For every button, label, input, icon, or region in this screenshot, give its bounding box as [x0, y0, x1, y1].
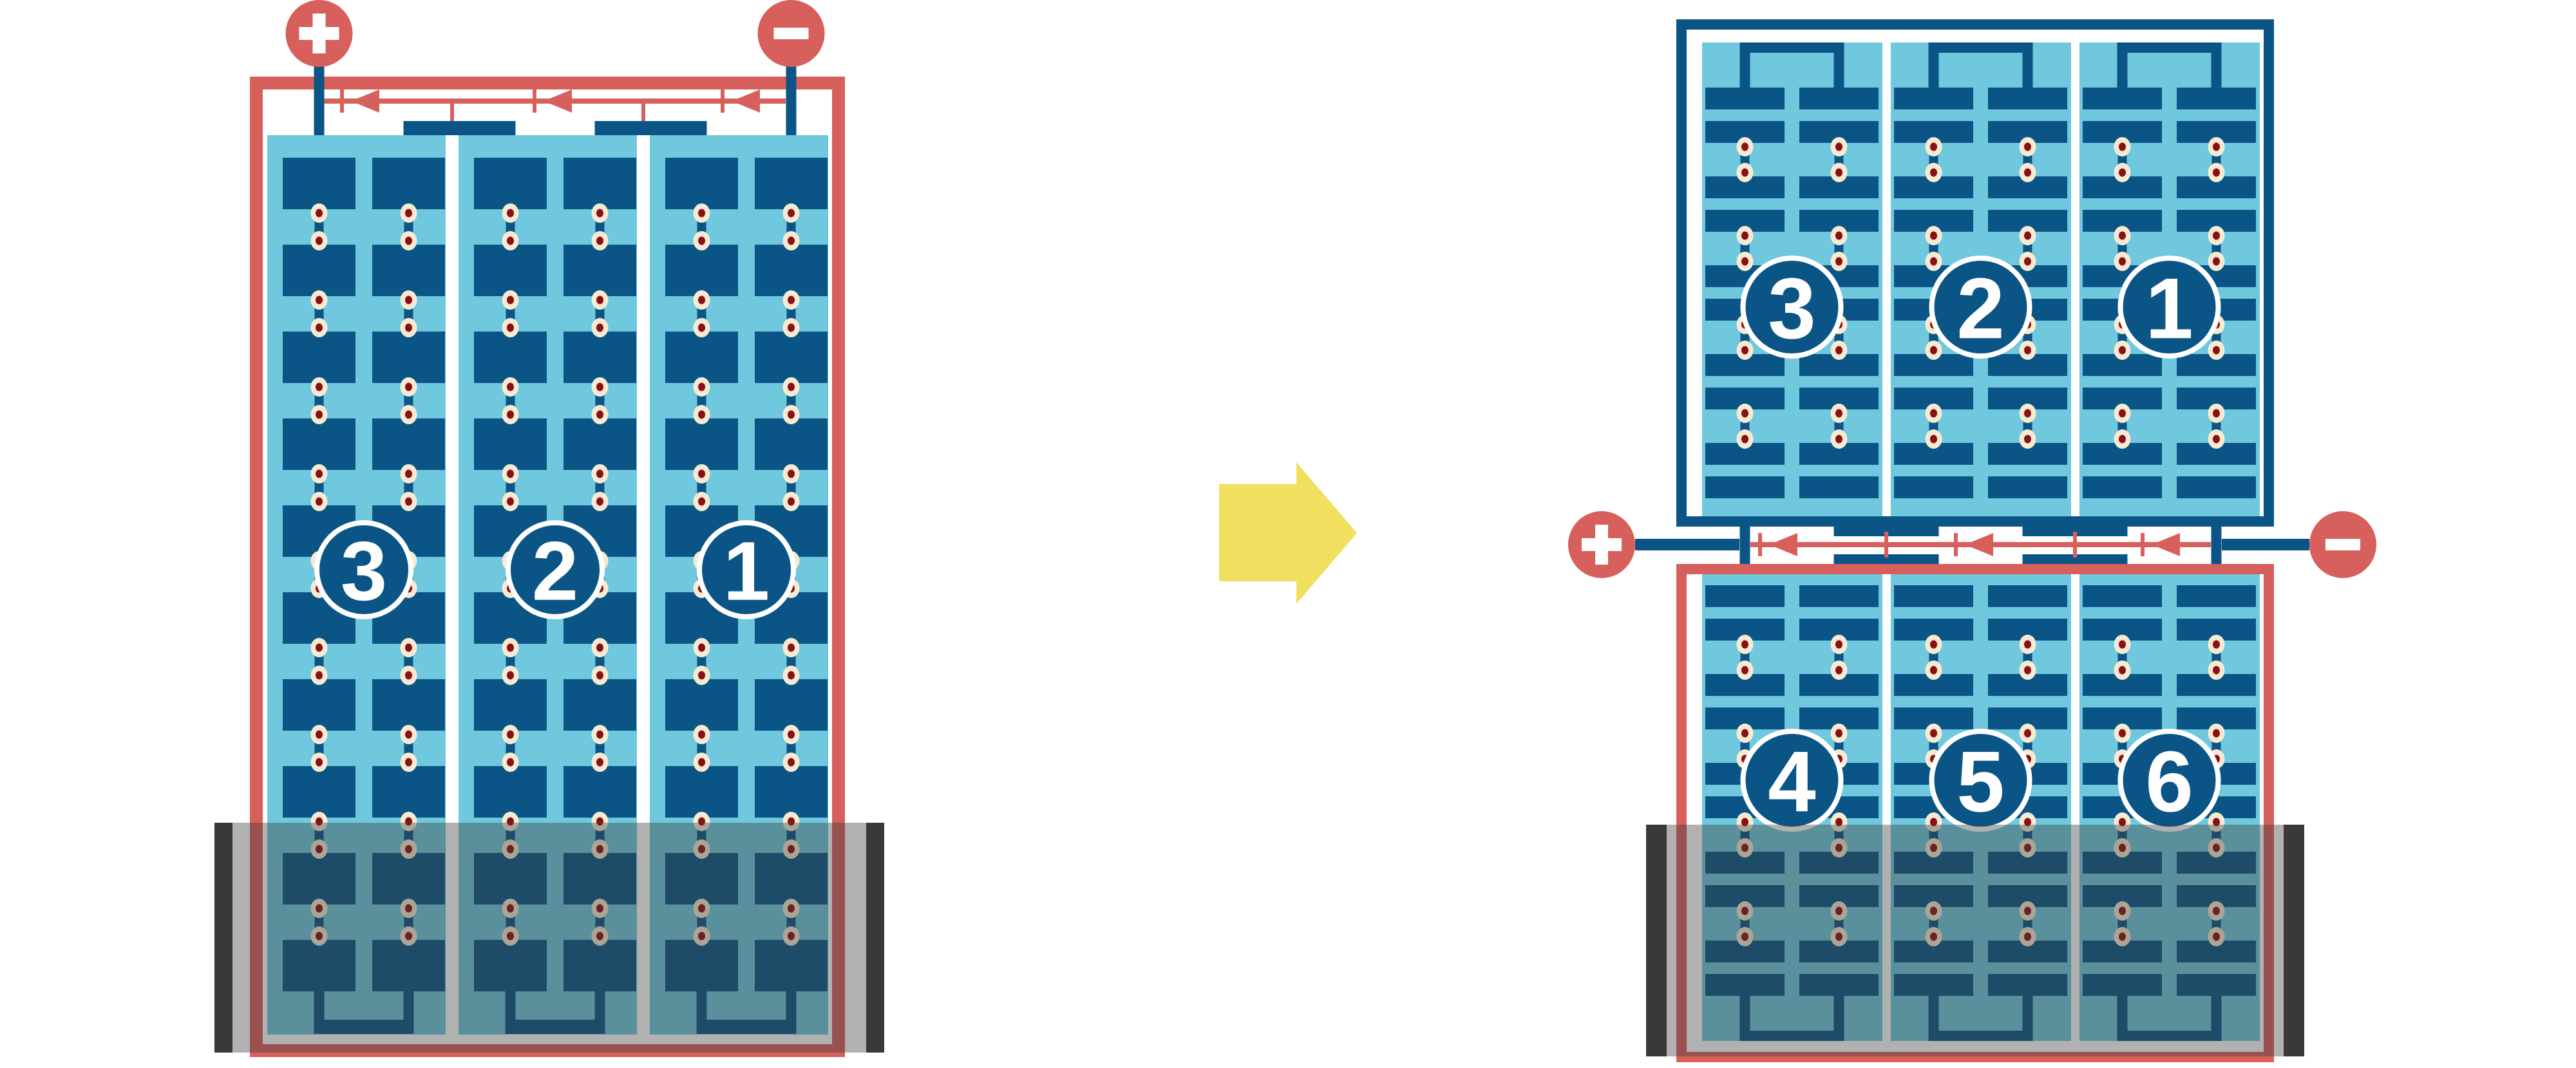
separator-bead-dot: [2024, 666, 2031, 675]
electrode-plate: [1705, 88, 1785, 109]
separator-bead-dot: [2024, 435, 2031, 444]
plus-glyph: [313, 14, 326, 53]
separator-bead-dot: [316, 383, 323, 391]
minus-glyph: [2325, 539, 2360, 550]
current-flow-line: [324, 89, 786, 124]
separator-bead-dot: [1741, 346, 1748, 355]
separator-bead-dot: [1930, 435, 1937, 444]
separator-bead-dot: [788, 411, 795, 419]
cell-number-label: 1: [723, 524, 770, 618]
separator-bead-dot: [1741, 666, 1748, 675]
electrode-plate: [665, 332, 738, 383]
container-glass-overlay: [1646, 825, 2304, 1056]
electrode-plate: [755, 766, 828, 818]
current-tick: [340, 89, 344, 113]
separator-bead-dot: [788, 383, 795, 391]
separator-bead-dot: [316, 731, 323, 739]
negative-terminal-icon: [758, 0, 825, 67]
current-tick: [533, 89, 536, 113]
separator-bead-dot: [507, 324, 514, 332]
separator-bead-dot: [2119, 258, 2126, 266]
separator-bead-dot: [788, 324, 795, 332]
current-arrowhead-left-icon: [1965, 533, 1993, 556]
separator-bead-dot: [596, 324, 603, 332]
separator-bead-dot: [507, 498, 514, 506]
separator-bead-dot: [507, 470, 514, 478]
strap-leg: [1740, 42, 1750, 88]
strap-bar: [2117, 42, 2222, 53]
separator-bead-dot: [1741, 435, 1748, 444]
separator-bead-dot: [507, 758, 514, 767]
separator-bead-dot: [507, 411, 514, 419]
electrode-plate: [283, 332, 355, 383]
separator-bead-dot: [507, 644, 514, 652]
separator-bead-dot: [698, 383, 705, 391]
transform-arrow-icon: [1219, 462, 1357, 604]
electrode-plate: [283, 679, 355, 731]
separator-bead-dot: [1835, 143, 1842, 151]
separator-bead-dot: [507, 383, 514, 391]
electrode-plate: [563, 332, 636, 383]
separator-bead-dot: [1835, 641, 1842, 649]
separator-bead-dot: [1741, 641, 1748, 649]
separator-bead-dot: [507, 209, 514, 218]
electrode-plate: [1894, 585, 1973, 607]
electrode-plate: [563, 418, 636, 470]
battery-cell: 3: [1702, 42, 1882, 516]
separator-bead-dot: [596, 411, 603, 419]
container-glass-overlay: [214, 823, 884, 1053]
separator-bead-dot: [316, 498, 323, 506]
separator-bead-dot: [2213, 409, 2220, 418]
electrode-plate: [665, 158, 738, 209]
container-wall-left: [1646, 825, 1667, 1056]
current-tick: [1954, 533, 1958, 556]
separator-bead-dot: [1930, 409, 1937, 418]
separator-bead-dot: [2119, 232, 2126, 240]
strap-bar: [1929, 42, 2033, 53]
separator-bead-dot: [1930, 346, 1937, 355]
minus-glyph: [774, 28, 809, 39]
battery-cells-diagram: 321321456: [0, 0, 2576, 1068]
current-branch-line: [450, 101, 454, 124]
separator-bead-dot: [316, 324, 323, 332]
electrode-plate: [665, 418, 738, 470]
separator-bead-dot: [1741, 169, 1748, 177]
separator-bead-dot: [788, 644, 795, 652]
current-flow-line: [1750, 532, 2211, 557]
electrode-plate: [372, 679, 445, 731]
separator-bead-dot: [788, 470, 795, 478]
electrode-plate: [372, 418, 445, 470]
diagram-canvas: 321321456: [0, 0, 2576, 1068]
separator-bead-dot: [596, 758, 603, 767]
negative-lead-bar: [2222, 539, 2309, 550]
electrode-plate: [563, 245, 636, 296]
electrode-plate: [2177, 476, 2256, 498]
separator-bead-dot: [2213, 143, 2220, 151]
electrode-plate: [755, 158, 828, 209]
plus-glyph: [1595, 525, 1608, 565]
separator-bead-dot: [2024, 641, 2031, 649]
separator-bead-dot: [316, 671, 323, 680]
current-arrowhead-left-icon: [732, 89, 760, 113]
electrode-plate: [474, 245, 547, 296]
electrode-plate: [563, 766, 636, 818]
separator-bead-dot: [405, 470, 412, 478]
electrode-plate: [1894, 88, 1973, 109]
electrode-plate: [2177, 88, 2256, 109]
strap-leg: [1834, 42, 1844, 88]
separator-bead-dot: [2119, 143, 2126, 151]
right-battery: 321456: [1568, 24, 2376, 1057]
electrode-plate: [372, 332, 445, 383]
strap-leg: [2023, 42, 2033, 88]
separator-bead-dot: [405, 237, 412, 245]
separator-bead-dot: [596, 383, 603, 391]
strap-bar: [1740, 42, 1844, 53]
electrode-plate: [2083, 88, 2162, 109]
electrode-plate: [1988, 88, 2067, 109]
separator-bead-dot: [2024, 409, 2031, 418]
electrode-plate: [283, 245, 355, 296]
electrode-plate: [474, 679, 547, 731]
separator-bead-dot: [405, 296, 412, 304]
container-wall-right: [2284, 825, 2304, 1056]
cell-number-label: 2: [532, 524, 578, 618]
electrode-plate: [2177, 585, 2256, 607]
strap-leg: [2117, 42, 2128, 88]
current-tick: [2141, 533, 2145, 556]
separator-bead-dot: [1835, 258, 1842, 266]
separator-bead-dot: [2213, 169, 2220, 177]
separator-bead-dot: [2024, 169, 2031, 177]
separator-bead-dot: [698, 237, 705, 245]
separator-bead-dot: [596, 671, 603, 680]
separator-bead-dot: [698, 296, 705, 304]
separator-bead-dot: [405, 209, 412, 218]
separator-bead-dot: [316, 237, 323, 245]
electrode-plate: [665, 245, 738, 296]
separator-bead-dot: [698, 644, 705, 652]
separator-bead-dot: [1835, 666, 1842, 675]
electrode-plate: [474, 332, 547, 383]
electrode-plate: [1799, 476, 1879, 498]
cell-number-label: 4: [1768, 734, 1816, 830]
separator-bead-dot: [1835, 232, 1842, 240]
electrode-plate: [563, 679, 636, 731]
separator-bead-dot: [698, 671, 705, 680]
separator-bead-dot: [1930, 169, 1937, 177]
separator-bead-dot: [788, 237, 795, 245]
electrode-plate: [755, 332, 828, 383]
battery-container: [214, 823, 884, 1053]
separator-bead-dot: [405, 324, 412, 332]
separator-bead-dot: [788, 758, 795, 767]
separator-bead-dot: [316, 470, 323, 478]
strap-leg: [2211, 42, 2222, 88]
electrode-plate: [1799, 88, 1879, 109]
separator-bead-dot: [2024, 258, 2031, 266]
separator-bead-dot: [1835, 346, 1842, 355]
separator-bead-dot: [405, 731, 412, 739]
strap-leg: [1929, 42, 1939, 88]
bridge-bar: [404, 121, 516, 135]
junction-end-bar: [2211, 527, 2222, 564]
separator-bead-dot: [788, 296, 795, 304]
separator-bead-dot: [316, 758, 323, 767]
separator-bead-dot: [1930, 258, 1937, 266]
battery-cell: 2: [1891, 42, 2071, 516]
separator-bead-dot: [2119, 666, 2126, 675]
current-arrowhead-left-icon: [351, 89, 379, 113]
electrode-plate: [755, 679, 828, 731]
electrode-plate: [1988, 585, 2067, 607]
electrode-plate: [755, 245, 828, 296]
current-tick: [2073, 532, 2077, 557]
container-wall-right: [866, 823, 884, 1053]
separator-bead-dot: [507, 237, 514, 245]
separator-bead-dot: [2213, 666, 2220, 675]
current-arrowhead-left-icon: [544, 89, 572, 113]
separator-bead-dot: [596, 644, 603, 652]
separator-bead-dot: [1835, 169, 1842, 177]
electrode-plate: [1894, 476, 1973, 498]
electrode-plate: [372, 158, 445, 209]
separator-bead-dot: [788, 498, 795, 506]
cell-number-label: 5: [1956, 734, 2005, 830]
separator-bead-dot: [1930, 729, 1937, 738]
positive-terminal-icon: [1568, 511, 1635, 578]
separator-bead-dot: [2119, 409, 2126, 418]
separator-bead-dot: [1741, 143, 1748, 151]
separator-bead-dot: [405, 644, 412, 652]
separator-bead-dot: [1741, 729, 1748, 738]
separator-bead-dot: [2024, 346, 2031, 355]
separator-bead-dot: [2119, 169, 2126, 177]
separator-bead-dot: [316, 209, 323, 218]
separator-bead-dot: [316, 411, 323, 419]
separator-bead-dot: [1930, 143, 1937, 151]
separator-bead-dot: [1930, 641, 1937, 649]
separator-bead-dot: [2119, 435, 2126, 444]
separator-bead-dot: [2213, 435, 2220, 444]
electrode-plate: [755, 418, 828, 470]
separator-bead-dot: [507, 296, 514, 304]
current-arrowhead-left-icon: [2152, 533, 2180, 556]
separator-bead-dot: [2213, 729, 2220, 738]
separator-bead-dot: [596, 470, 603, 478]
electrode-plate: [283, 766, 355, 818]
electrode-plate: [283, 418, 355, 470]
cell-number-label: 3: [341, 524, 387, 618]
electrode-plate: [563, 158, 636, 209]
positive-terminal-icon: [286, 0, 353, 67]
separator-bead-dot: [405, 383, 412, 391]
cell-number-label: 1: [2145, 261, 2193, 357]
separator-bead-dot: [788, 209, 795, 218]
separator-bead-dot: [1835, 729, 1842, 738]
separator-bead-dot: [405, 758, 412, 767]
battery-container: [1646, 825, 2304, 1056]
left-battery: 321: [214, 0, 884, 1053]
separator-bead-dot: [596, 498, 603, 506]
electrode-plate: [474, 418, 547, 470]
separator-bead-dot: [316, 296, 323, 304]
separator-bead-dot: [596, 731, 603, 739]
electrode-plate: [474, 766, 547, 818]
separator-bead-dot: [405, 411, 412, 419]
electrode-plate: [665, 679, 738, 731]
cell-number-label: 6: [2145, 734, 2193, 830]
electrode-plate: [283, 158, 355, 209]
electrode-plate: [474, 158, 547, 209]
electrode-plate: [2083, 585, 2162, 607]
current-arrowhead-left-icon: [1769, 533, 1797, 556]
separator-bead-dot: [2213, 346, 2220, 355]
separator-bead-dot: [1930, 232, 1937, 240]
separator-bead-dot: [1835, 409, 1842, 418]
electrode-plate: [1705, 476, 1785, 498]
junction-end-bar: [1740, 527, 1750, 564]
separator-bead-dot: [698, 758, 705, 767]
current-tick: [721, 89, 724, 113]
separator-bead-dot: [2213, 232, 2220, 240]
separator-bead-dot: [698, 411, 705, 419]
separator-bead-dot: [1741, 409, 1748, 418]
battery-cell: 1: [2079, 42, 2260, 516]
separator-bead-dot: [2213, 641, 2220, 649]
cell-number-label: 3: [1768, 261, 1816, 357]
separator-bead-dot: [698, 470, 705, 478]
separator-bead-dot: [2119, 641, 2126, 649]
current-tick: [1884, 532, 1888, 557]
separator-bead-dot: [1741, 232, 1748, 240]
separator-bead-dot: [507, 731, 514, 739]
separator-bead-dot: [316, 644, 323, 652]
separator-bead-dot: [507, 671, 514, 680]
separator-bead-dot: [788, 671, 795, 680]
separator-bead-dot: [1741, 258, 1748, 266]
series-junction: [1635, 527, 2309, 564]
separator-bead-dot: [2213, 258, 2220, 266]
bridge-bar: [595, 121, 707, 135]
electrode-plate: [1988, 476, 2067, 498]
separator-bead-dot: [1930, 666, 1937, 675]
current-branch-line: [641, 101, 645, 124]
electrode-plate: [372, 766, 445, 818]
separator-bead-dot: [2024, 232, 2031, 240]
separator-bead-dot: [2024, 729, 2031, 738]
separator-bead-dot: [2119, 729, 2126, 738]
separator-bead-dot: [2024, 143, 2031, 151]
electrode-plate: [372, 245, 445, 296]
positive-lead-bar: [1635, 539, 1739, 550]
container-wall-left: [214, 823, 232, 1053]
current-tick: [1758, 533, 1762, 556]
negative-terminal-icon: [2309, 511, 2376, 578]
separator-bead-dot: [596, 296, 603, 304]
separator-bead-dot: [698, 498, 705, 506]
separator-bead-dot: [698, 209, 705, 218]
electrode-plate: [1705, 585, 1785, 607]
separator-bead-dot: [788, 731, 795, 739]
electrode-plate: [2083, 476, 2162, 498]
electrode-plate: [1799, 585, 1879, 607]
separator-bead-dot: [1835, 435, 1842, 444]
separator-bead-dot: [596, 209, 603, 218]
separator-bead-dot: [698, 324, 705, 332]
separator-bead-dot: [405, 671, 412, 680]
separator-bead-dot: [405, 498, 412, 506]
cell-number-label: 2: [1956, 261, 2005, 357]
electrode-plate: [665, 766, 738, 818]
separator-bead-dot: [596, 237, 603, 245]
separator-bead-dot: [698, 731, 705, 739]
separator-bead-dot: [2119, 346, 2126, 355]
